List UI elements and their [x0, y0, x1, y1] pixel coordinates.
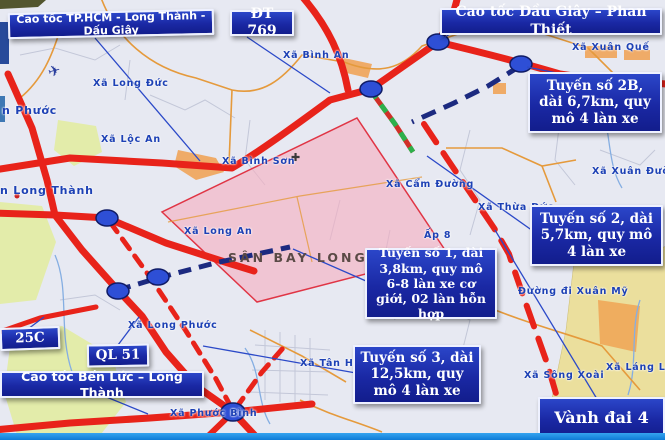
planned-route-green: [371, 91, 413, 152]
label-xa-cam-duong: Xã Cẩm Đường: [386, 179, 474, 190]
box-cao-toc-ben-luc-lt: Cao tốc Bến Lức – Long Thành: [0, 371, 204, 398]
label-duong-di-xuan-my: Đường đi Xuân Mỹ: [518, 286, 629, 297]
label-ap-8: Ấp 8: [424, 230, 451, 241]
photo-bottom-edge: [0, 433, 665, 440]
church-cross-icon: ✚: [291, 151, 300, 164]
box-tuyen-so-2b: Tuyến số 2B, dài 6,7km, quy mô 4 làn xe: [528, 72, 662, 133]
label-phuoc: n Phước: [2, 104, 57, 117]
box-tuyen-so-2: Tuyến số 2, dài 5,7km, quy mô 4 làn xe: [530, 205, 663, 266]
label-xa-long-an: Xã Long An: [184, 226, 253, 237]
label-xa-long-duc: Xã Long Đức: [93, 78, 169, 89]
label-xa-xuan-duong: Xã Xuân Đường: [592, 166, 665, 177]
label-xa-xuan-que: Xã Xuân Quế: [572, 42, 650, 53]
label-xa-song-xoai: Xã Sông Xoài: [524, 370, 604, 381]
label-xa-long-phuoc: Xã Long Phước: [128, 320, 218, 331]
label-xa-binh-an: Xã Bình An: [283, 50, 350, 61]
label-xa-phuoc-binh: Xã Phước Bình: [170, 408, 257, 419]
dt769-road: [300, 0, 348, 90]
box-25c: 25C: [0, 326, 60, 351]
planning-map: Xã Bình An Xã Xuân Quế Xã Long Đức n Phư…: [0, 0, 665, 440]
label-xa-binh-son: Xã Bình Sơn: [222, 156, 295, 167]
label-xa-lang-lon: Xã Láng Lớn: [606, 362, 665, 373]
label-xa-loc-an: Xã Lộc An: [101, 134, 161, 145]
box-cao-toc-dg-phan-thiet: Cao tốc Dầu Giây – Phan Thiết: [440, 8, 662, 35]
box-tuyen-so-3: Tuyến số 3, dài 12,5km, quy mô 4 làn xe: [353, 345, 481, 404]
box-ql-51: QL 51: [87, 343, 149, 367]
label-long-thanh: n Long Thành: [0, 184, 94, 197]
box-tuyen-so-1: Tuyến số 1, dài 3,8km, quy mô 6-8 làn xe…: [365, 248, 497, 319]
box-dt-769: ĐT 769: [230, 10, 294, 36]
box-cao-toc-hcm-lt-dg: Cao tốc TP.HCM - Long Thành - Dấu Giây: [8, 9, 214, 39]
